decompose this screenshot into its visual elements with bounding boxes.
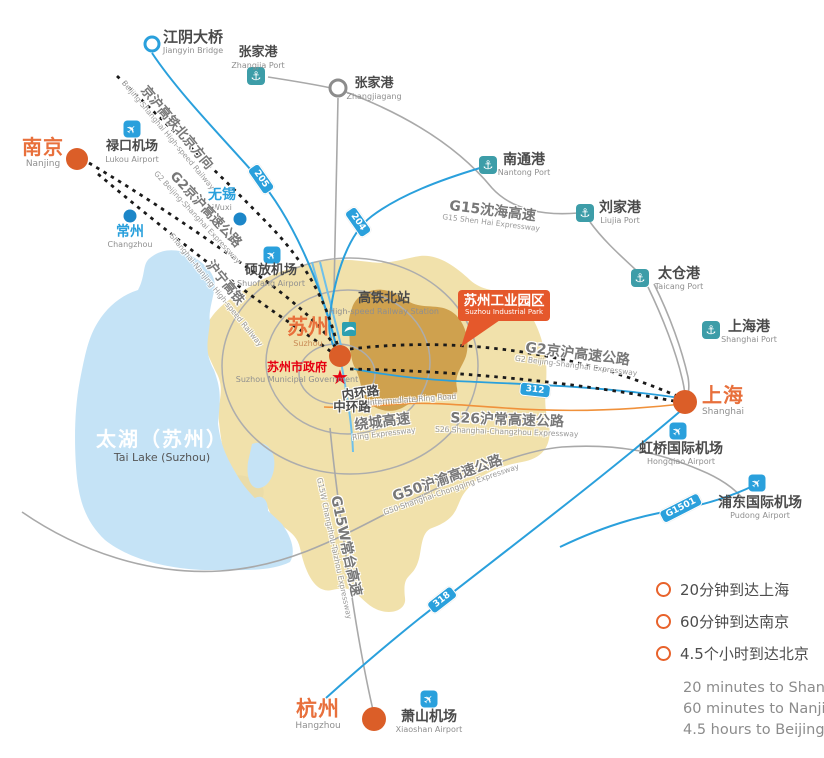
nantong-port-anchor-icon: ⚓ — [479, 156, 497, 174]
shanghai-port-anchor-icon: ⚓ — [702, 321, 720, 339]
s26-road-label: S26沪常高速公路 S26 Shanghai-Changzhou Express… — [435, 411, 579, 440]
lukou-airport-label: 禄口机场 Lukou Airport — [105, 140, 159, 165]
shanghai-city-label: 上海 Shanghai — [702, 384, 744, 418]
lukou-airport-icon: ✈ — [124, 121, 141, 138]
nantong-port-label: 南通港 Nantong Port — [498, 152, 551, 178]
changzhou-city-dot — [124, 210, 137, 223]
government-label: 苏州市政府 Suzhou Municipal Government — [236, 361, 358, 384]
shuofang-airport-label: 硕放机场 Shuofang Airport — [237, 264, 305, 289]
tai-lake-label: 太湖（苏州） Tai Lake (Suzhou) — [96, 428, 228, 464]
shanghai-port-label: 上海港 Shanghai Port — [721, 319, 777, 345]
hangzhou-city-label: 杭州 Hangzhou — [295, 697, 340, 732]
xiaoshan-airport-label: 萧山机场 Xiaoshan Airport — [396, 709, 463, 735]
zhangjia-port-label: 张家港 Zhangjia Port — [231, 46, 284, 71]
taicang-port-label: 太仓港 Taicang Port — [655, 266, 704, 292]
hangzhou-city-dot — [362, 707, 386, 731]
zhangjiagang-city-marker — [329, 79, 348, 98]
pudong-airport-icon: ✈ — [749, 475, 766, 492]
legend-row-beijing: 4.5个小时到达北京 — [656, 643, 824, 664]
hongqiao-airport-label: 虹桥国际机场 Hongqiao Airport — [639, 441, 723, 467]
legend-row-shanghai: 20分钟到达上海 — [656, 579, 824, 600]
shuofang-airport-icon: ✈ — [264, 247, 281, 264]
nanjing-city-dot — [66, 148, 88, 170]
taicang-port-anchor-icon: ⚓ — [631, 269, 649, 287]
suzhou-city-label: 苏州 Suzhou — [287, 315, 329, 349]
middle-ring-road-label: 中环路 — [333, 400, 371, 414]
jiangyin-bridge-marker — [144, 36, 161, 53]
liujia-port-label: 刘家港 Liujia Port — [599, 200, 641, 226]
xiaoshan-airport-icon: ✈ — [421, 691, 438, 708]
jiangyin-bridge-label: 江阴大桥 Jiangyin Bridge — [163, 29, 223, 56]
travel-time-legend: 20分钟到达上海 60分钟到达南京 4.5个小时到达北京 20 minutes … — [656, 579, 824, 741]
legend-bullet-icon — [656, 646, 671, 661]
nanjing-city-label: 南京 Nanjing — [22, 136, 64, 170]
railway-station-icon — [342, 322, 356, 336]
zhangjiagang-city-label: 张家港 Zhangjiagang — [346, 77, 401, 102]
legend-bullet-icon — [656, 614, 671, 629]
hongqiao-airport-icon: ✈ — [670, 423, 687, 440]
legend-english-block: 20 minutes to Shanghai 60 minutes to Nan… — [656, 678, 824, 741]
railway-station-label: 高铁北站 High-speed Railway Station — [329, 292, 439, 317]
train-glyph — [344, 325, 355, 333]
legend-row-nanjing: 60分钟到达南京 — [656, 611, 824, 632]
industrial-park-callout: 苏州工业园区 Suzhou Industrial Park — [458, 290, 550, 321]
changzhou-city-label: 常州 Changzhou — [108, 224, 153, 250]
wuxi-city-dot — [234, 213, 247, 226]
suzhou-region-transport-map: ★ ⚓ ⚓ ⚓ ⚓ ⚓ ✈ ✈ ✈ ✈ ✈ 江阴大桥 Jiangyin Brid… — [0, 0, 824, 758]
pudong-airport-label: 浦东国际机场 Pudong Airport — [718, 495, 802, 521]
legend-bullet-icon — [656, 582, 671, 597]
shanghai-city-dot — [673, 390, 697, 414]
liujia-port-anchor-icon: ⚓ — [576, 204, 594, 222]
